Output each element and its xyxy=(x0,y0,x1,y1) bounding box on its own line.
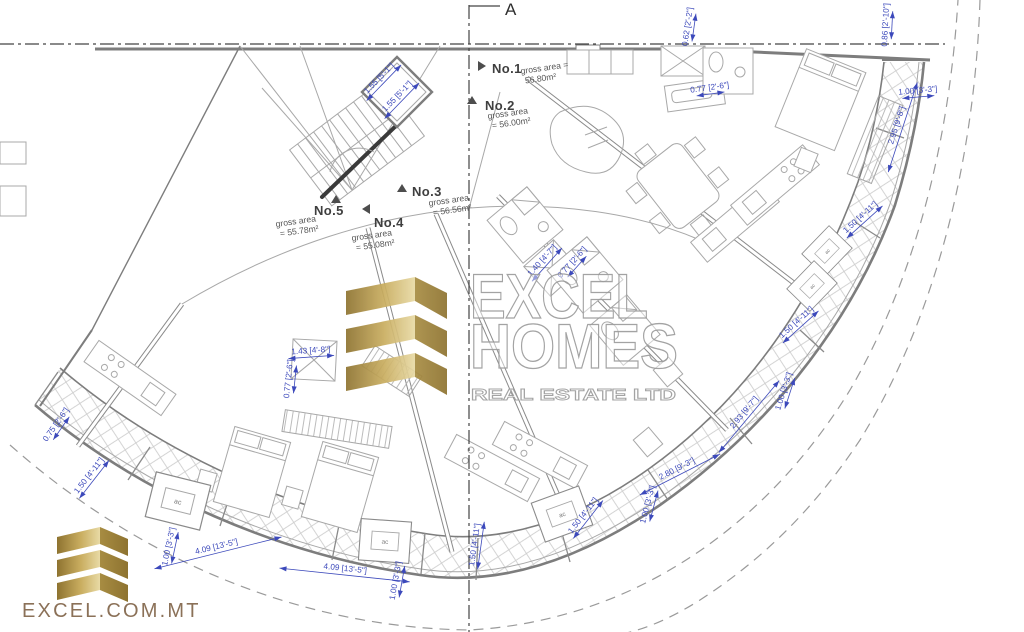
dimension: 1.50 [4'-11"] xyxy=(71,454,111,500)
gold-bar xyxy=(57,573,128,602)
unit-area: gross area =56.80m² xyxy=(520,59,570,85)
sofa xyxy=(550,106,623,173)
unit-label-group: No.3gross area= 56.56m² xyxy=(397,184,472,218)
floor-plan-svg: A acacacacac 0.62 [2'-2"]0.86 [2'-10"]0.… xyxy=(0,0,1024,632)
unit-number: No.1 xyxy=(492,61,522,76)
neighbour-stub xyxy=(0,142,26,164)
neighbour-stub xyxy=(0,186,26,216)
dimension: 0.62 [2'-2"] xyxy=(680,7,699,48)
dimension-label: 1.50 [4'-11"] xyxy=(72,456,106,495)
wardrobe xyxy=(282,410,392,449)
ac-closet: ac xyxy=(358,519,411,564)
gold-bar xyxy=(346,315,447,357)
unit-label-group: No.2gross area= 56.00m² xyxy=(467,96,531,131)
section-marker-label: A xyxy=(505,0,517,19)
unit-area: gross area= 55.78m² xyxy=(275,213,319,239)
watermark-line2: HOMES xyxy=(470,312,678,382)
footer-logo-text: EXCEL.COM.MT xyxy=(22,600,201,622)
unit-label-group: No.1gross area =56.80m² xyxy=(478,59,570,85)
gold-bar xyxy=(57,527,128,556)
unit-number: No.5 xyxy=(314,203,344,218)
dimension-label: 0.62 [2'-2"] xyxy=(680,7,694,47)
unit-marker-icon xyxy=(397,184,407,192)
unit-marker-icon xyxy=(362,204,370,214)
bed xyxy=(775,49,866,151)
footer-logo-mark xyxy=(57,527,128,602)
ac-label: ac xyxy=(381,538,388,545)
armchair xyxy=(633,427,662,457)
dimension: 1.00 [3'-3"] xyxy=(160,526,181,567)
dimension-label: 1.00 [3'-3"] xyxy=(160,526,177,566)
unit-label-group: No.4gross area= 55.08m² xyxy=(351,204,404,253)
unit-label-group: No.5gross area= 55.78m² xyxy=(275,195,344,239)
floorplan-page: A acacacacac 0.62 [2'-2"]0.86 [2'-10"]0.… xyxy=(0,0,1024,632)
gold-bar xyxy=(57,550,128,579)
roof-triangle xyxy=(240,46,440,190)
shaft-top-right xyxy=(661,46,705,76)
wardrobe xyxy=(567,50,633,74)
unit-marker-icon xyxy=(478,61,486,71)
watermark-line3: REAL ESTATE LTD xyxy=(471,387,676,404)
unit-area: gross area= 55.08m² xyxy=(351,227,395,253)
dimension: 0.86 [2'-10"] xyxy=(880,3,896,47)
gold-bar xyxy=(346,277,447,319)
watermark-logo xyxy=(346,277,447,395)
dimension-label: 0.86 [2'-10"] xyxy=(880,3,891,47)
